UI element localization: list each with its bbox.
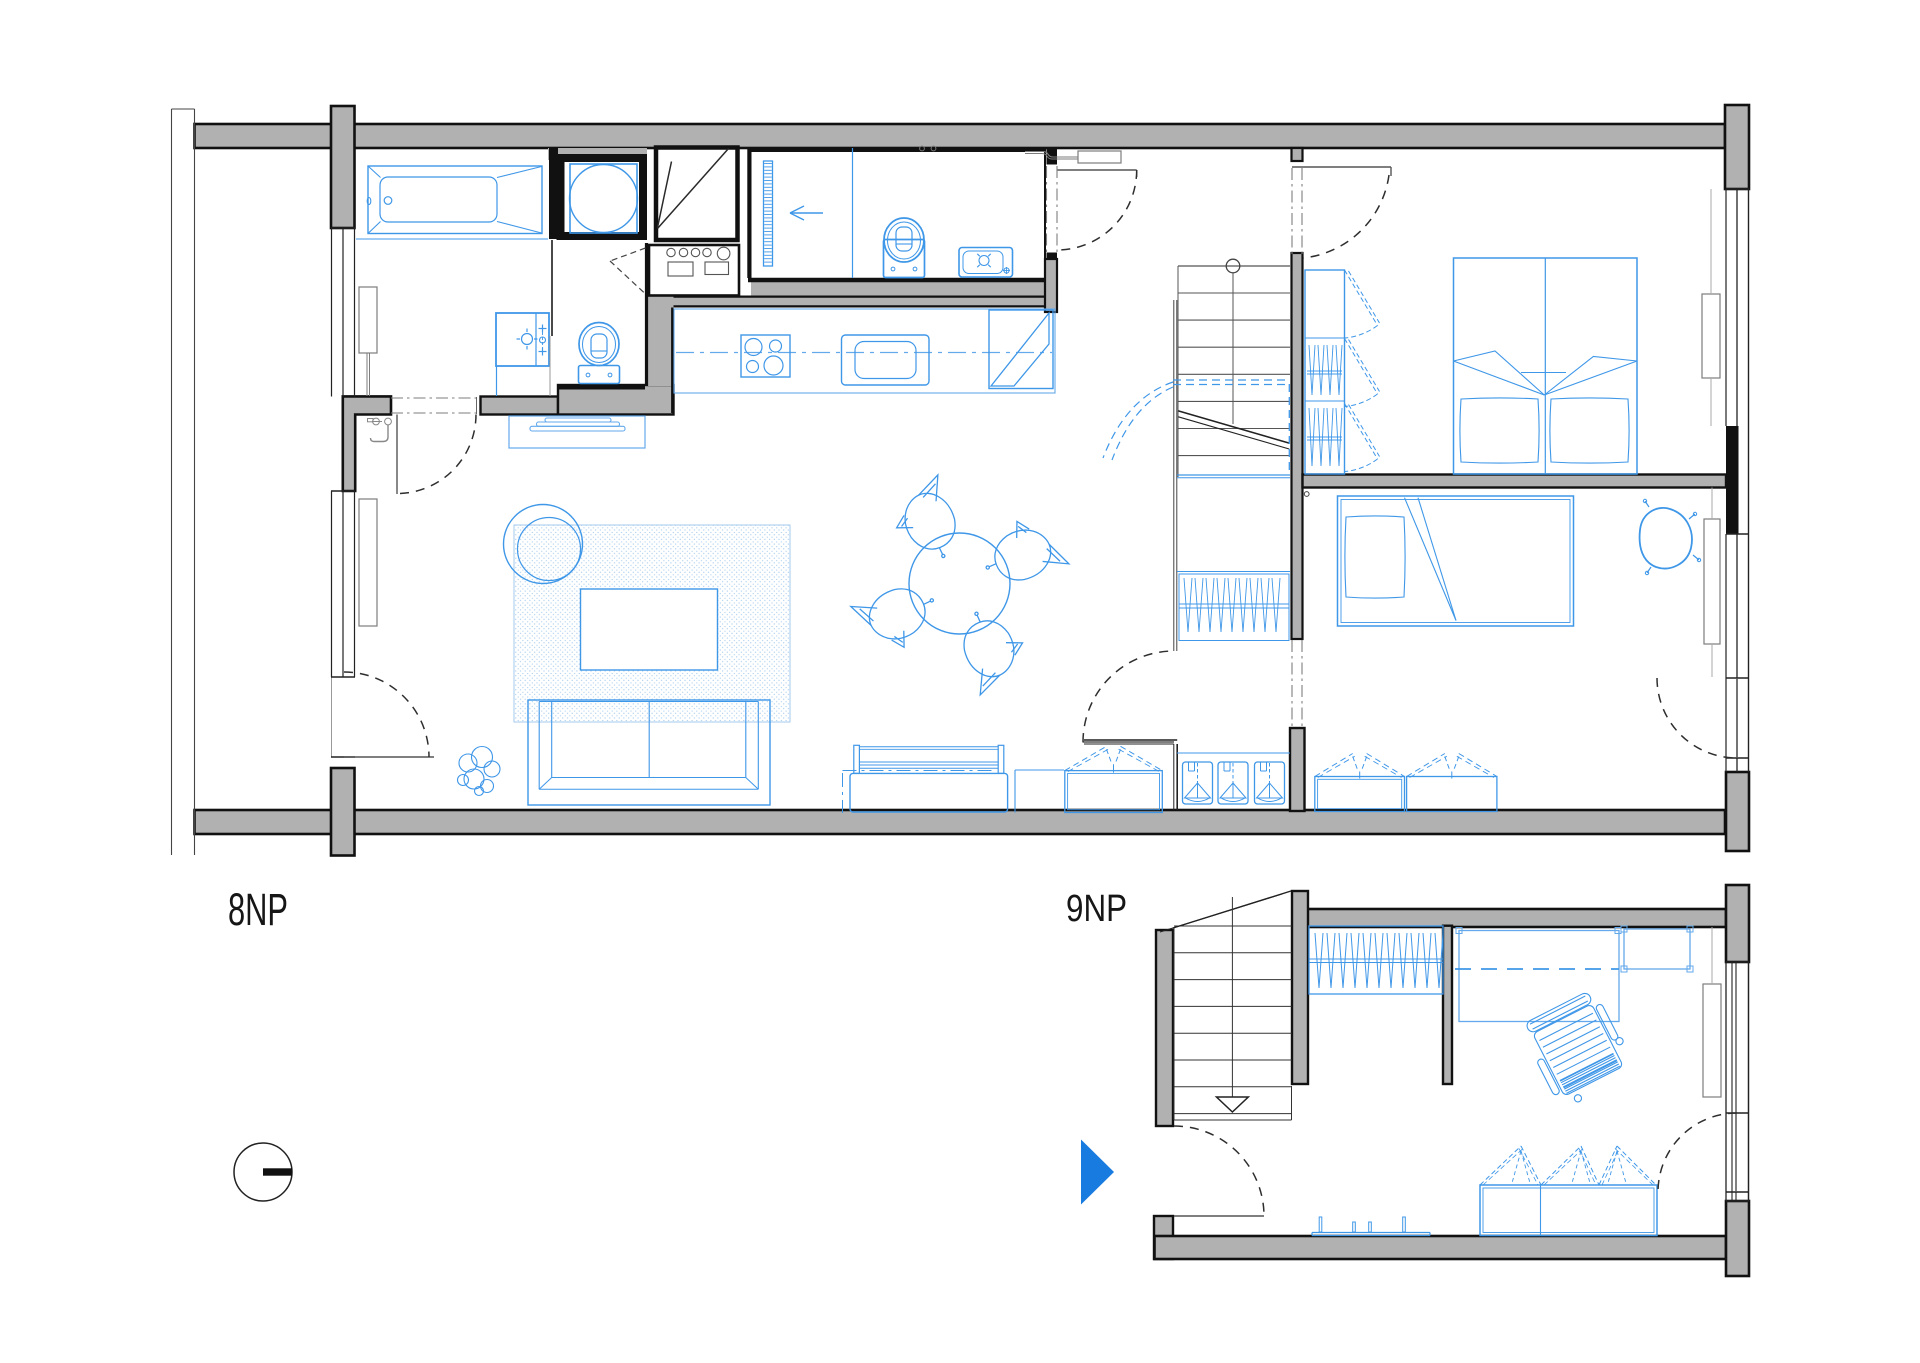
svg-text:8NP: 8NP [228,884,288,935]
svg-text:9NP: 9NP [1066,888,1127,930]
